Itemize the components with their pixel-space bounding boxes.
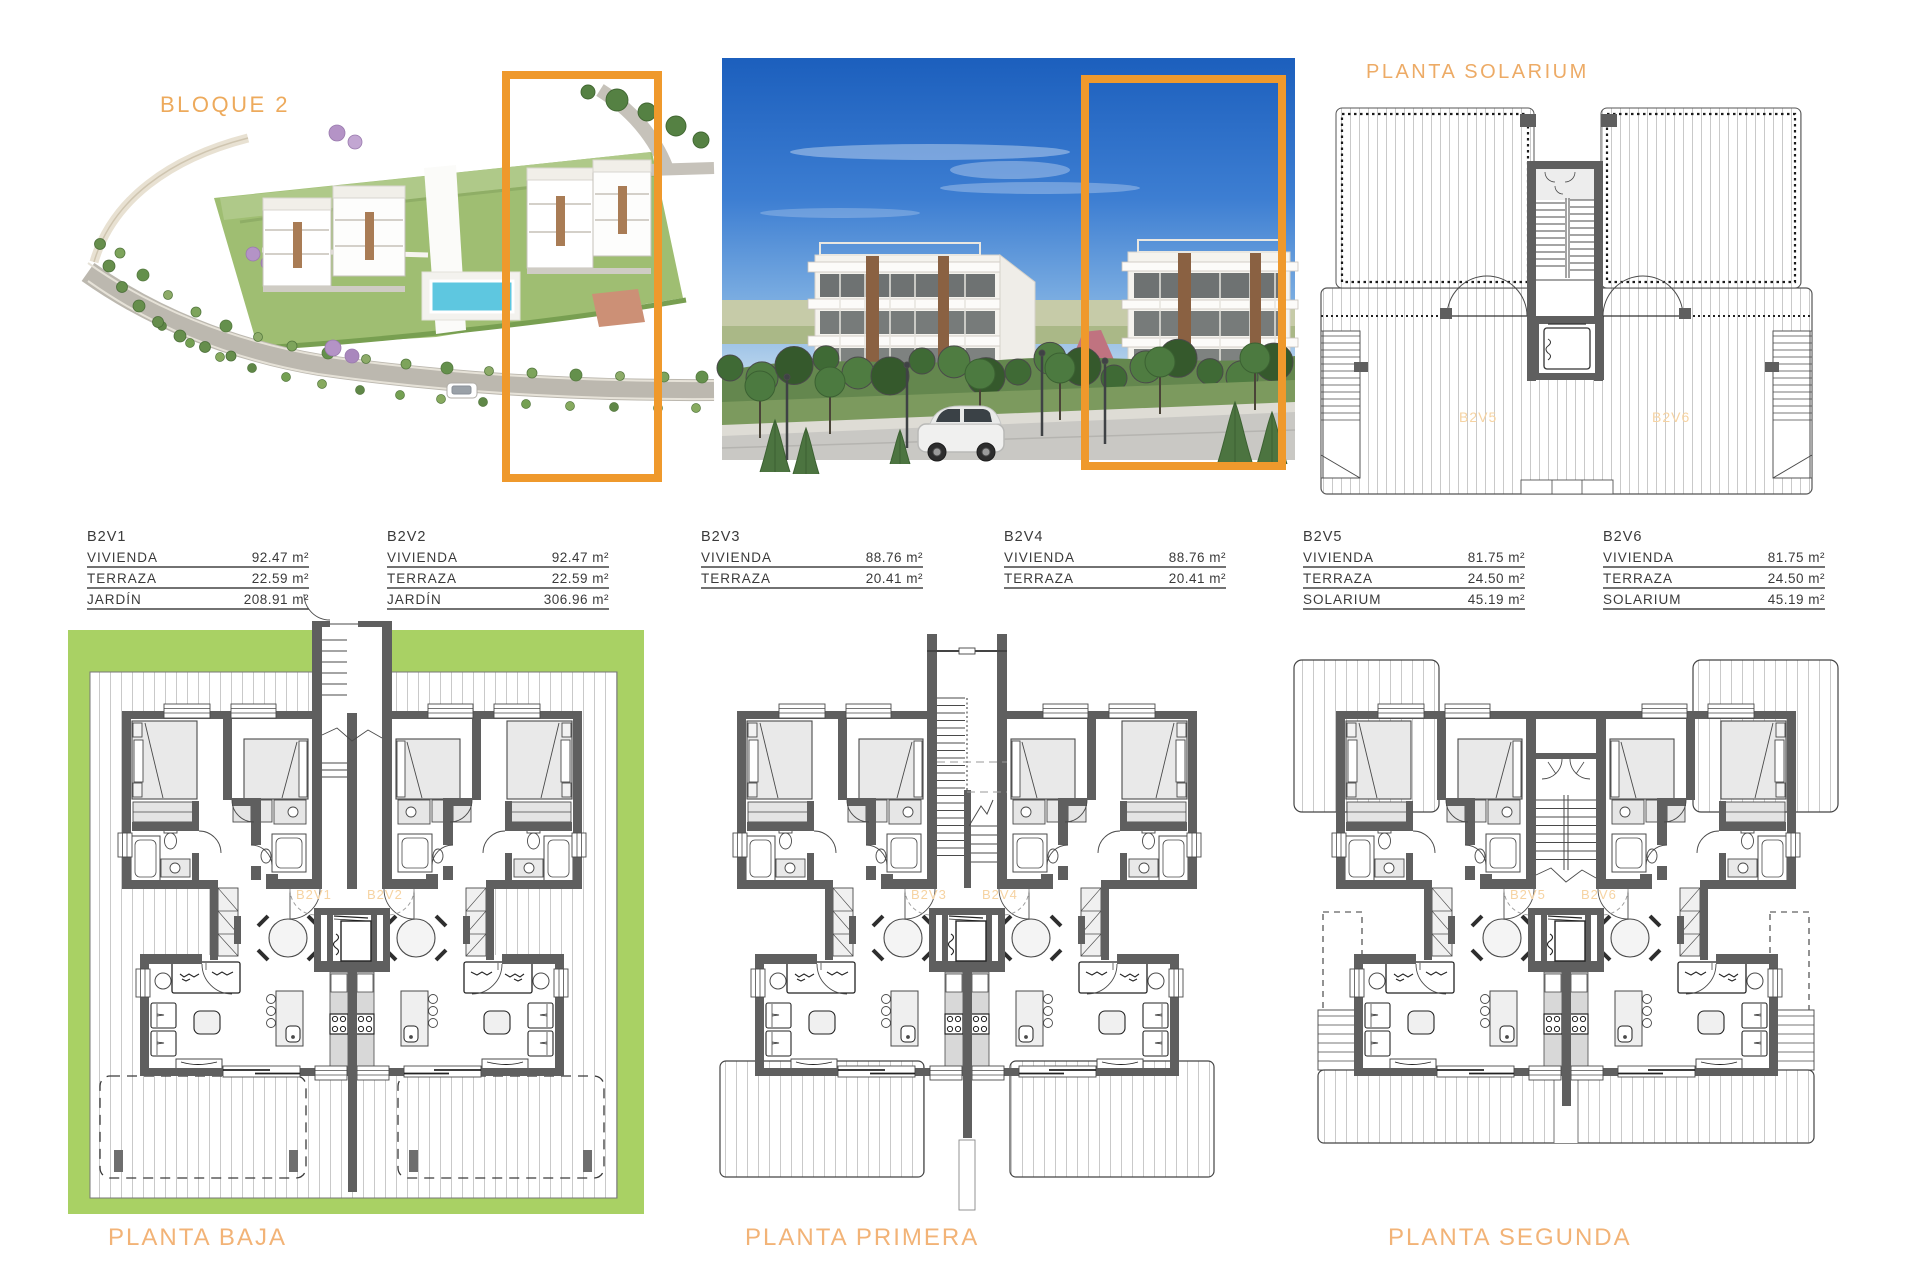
svg-text:TERRAZA: TERRAZA <box>87 571 157 586</box>
svg-text:B2V1: B2V1 <box>296 887 332 902</box>
svg-text:B2V5: B2V5 <box>1303 529 1342 545</box>
svg-text:VIVIENDA: VIVIENDA <box>1303 550 1374 565</box>
svg-text:SOLARIUM: SOLARIUM <box>1303 592 1382 607</box>
svg-text:JARDÍN: JARDÍN <box>87 592 142 607</box>
svg-text:92.47 m²: 92.47 m² <box>252 550 309 565</box>
svg-text:TERRAZA: TERRAZA <box>701 571 771 586</box>
svg-text:88.76 m²: 88.76 m² <box>866 550 923 565</box>
svg-text:TERRAZA: TERRAZA <box>387 571 457 586</box>
svg-text:22.59 m²: 22.59 m² <box>252 571 309 586</box>
svg-text:VIVIENDA: VIVIENDA <box>1004 550 1075 565</box>
svg-text:B2V6: B2V6 <box>1603 529 1642 545</box>
svg-text:45.19 m²: 45.19 m² <box>1468 592 1525 607</box>
svg-text:B2V3: B2V3 <box>911 887 947 902</box>
svg-text:PLANTA SEGUNDA: PLANTA SEGUNDA <box>1388 1224 1632 1251</box>
svg-text:45.19 m²: 45.19 m² <box>1768 592 1825 607</box>
svg-text:VIVIENDA: VIVIENDA <box>1603 550 1674 565</box>
svg-text:20.41 m²: 20.41 m² <box>1169 571 1226 586</box>
svg-text:PLANTA SOLARIUM: PLANTA SOLARIUM <box>1366 61 1589 83</box>
svg-text:VIVIENDA: VIVIENDA <box>701 550 772 565</box>
svg-text:208.91 m²: 208.91 m² <box>244 592 309 607</box>
svg-text:81.75 m²: 81.75 m² <box>1468 550 1525 565</box>
svg-text:B2V4: B2V4 <box>1004 529 1043 545</box>
svg-text:92.47 m²: 92.47 m² <box>552 550 609 565</box>
svg-text:24.50 m²: 24.50 m² <box>1468 571 1525 586</box>
svg-text:TERRAZA: TERRAZA <box>1603 571 1673 586</box>
svg-text:BLOQUE 2: BLOQUE 2 <box>160 92 290 117</box>
svg-text:B2V2: B2V2 <box>387 529 426 545</box>
svg-text:24.50 m²: 24.50 m² <box>1768 571 1825 586</box>
svg-text:81.75 m²: 81.75 m² <box>1768 550 1825 565</box>
svg-text:PLANTA PRIMERA: PLANTA PRIMERA <box>745 1224 979 1251</box>
svg-text:TERRAZA: TERRAZA <box>1004 571 1074 586</box>
svg-text:B2V6: B2V6 <box>1581 887 1617 902</box>
svg-text:B2V3: B2V3 <box>701 529 740 545</box>
svg-text:SOLARIUM: SOLARIUM <box>1603 592 1682 607</box>
svg-text:B2V2: B2V2 <box>367 887 403 902</box>
svg-text:B2V5: B2V5 <box>1510 887 1546 902</box>
svg-text:B2V5: B2V5 <box>1459 409 1497 425</box>
svg-text:20.41 m²: 20.41 m² <box>866 571 923 586</box>
svg-text:PLANTA BAJA: PLANTA BAJA <box>108 1224 287 1251</box>
svg-text:VIVIENDA: VIVIENDA <box>387 550 458 565</box>
svg-text:88.76 m²: 88.76 m² <box>1169 550 1226 565</box>
svg-text:B2V6: B2V6 <box>1652 409 1690 425</box>
svg-text:JARDÍN: JARDÍN <box>387 592 442 607</box>
svg-text:VIVIENDA: VIVIENDA <box>87 550 158 565</box>
svg-text:22.59 m²: 22.59 m² <box>552 571 609 586</box>
svg-text:306.96 m²: 306.96 m² <box>544 592 609 607</box>
svg-text:B2V4: B2V4 <box>982 887 1018 902</box>
svg-text:TERRAZA: TERRAZA <box>1303 571 1373 586</box>
svg-text:B2V1: B2V1 <box>87 529 126 545</box>
